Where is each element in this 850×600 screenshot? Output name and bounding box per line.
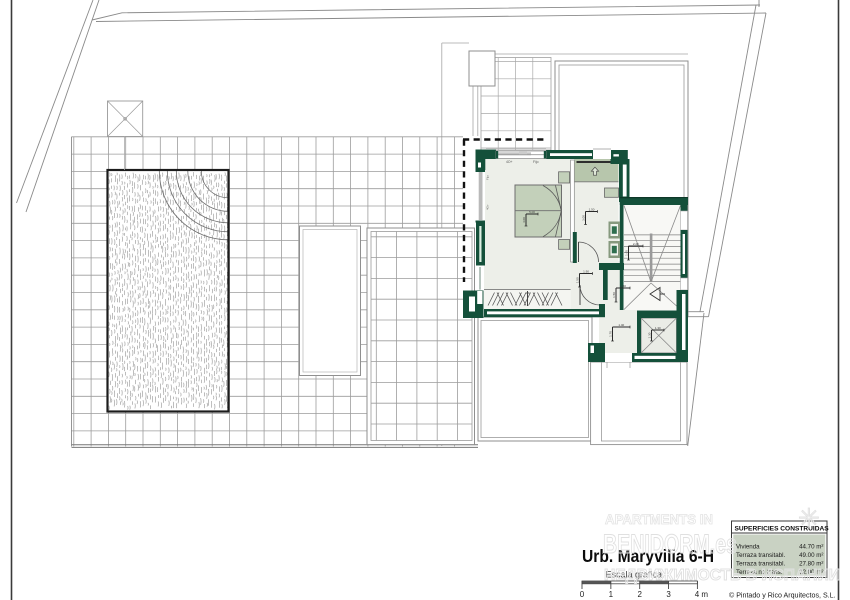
svg-text:1.50: 1.50	[612, 292, 616, 298]
svg-text:Fijo: Fijo	[486, 175, 490, 180]
svg-text:1.30: 1.30	[647, 332, 651, 338]
svg-text:1.70: 1.70	[608, 331, 612, 337]
svg-text:1.50: 1.50	[575, 277, 579, 283]
svg-text:Terraza transitabl.: Terraza transitabl.	[736, 552, 785, 559]
svg-text:✳: ✳	[798, 503, 820, 533]
svg-text:Fijo: Fijo	[533, 160, 539, 164]
svg-text:1.30: 1.30	[655, 326, 661, 330]
svg-text:1.40: 1.40	[618, 323, 624, 327]
svg-text:3.00: 3.00	[581, 215, 585, 221]
svg-text:2.20: 2.20	[633, 242, 639, 246]
svg-text:BENIDORM.es: BENIDORM.es	[603, 529, 737, 559]
svg-text:49.00 m²: 49.00 m²	[799, 552, 823, 559]
svg-text:APARTMENTS IN: APARTMENTS IN	[605, 512, 713, 527]
svg-text:0: 0	[580, 590, 585, 599]
svg-text:НЕДВИЖИМОСТЬ В ИСПАНИИ: НЕДВИЖИМОСТЬ В ИСПАНИИ	[604, 567, 840, 584]
svg-text:3: 3	[666, 590, 671, 599]
svg-text:4O+: 4O+	[486, 204, 490, 210]
svg-text:1: 1	[609, 590, 614, 599]
svg-text:1.65: 1.65	[624, 250, 628, 256]
svg-text:44.70 m²: 44.70 m²	[799, 544, 823, 551]
svg-text:1.50: 1.50	[589, 208, 595, 212]
svg-text:4 m: 4 m	[695, 590, 709, 599]
svg-text:1.90: 1.90	[583, 270, 589, 274]
svg-text:1.60: 1.60	[620, 284, 626, 288]
svg-text:© Pintado y Rico Arquitectos,: © Pintado y Rico Arquitectos, S.L.	[729, 592, 836, 600]
svg-text:4O+: 4O+	[506, 160, 513, 164]
svg-text:Vivienda: Vivienda	[736, 544, 760, 551]
svg-text:4.00: 4.00	[522, 217, 526, 223]
svg-text:2: 2	[637, 590, 642, 599]
svg-text:5.00: 5.00	[529, 210, 535, 214]
